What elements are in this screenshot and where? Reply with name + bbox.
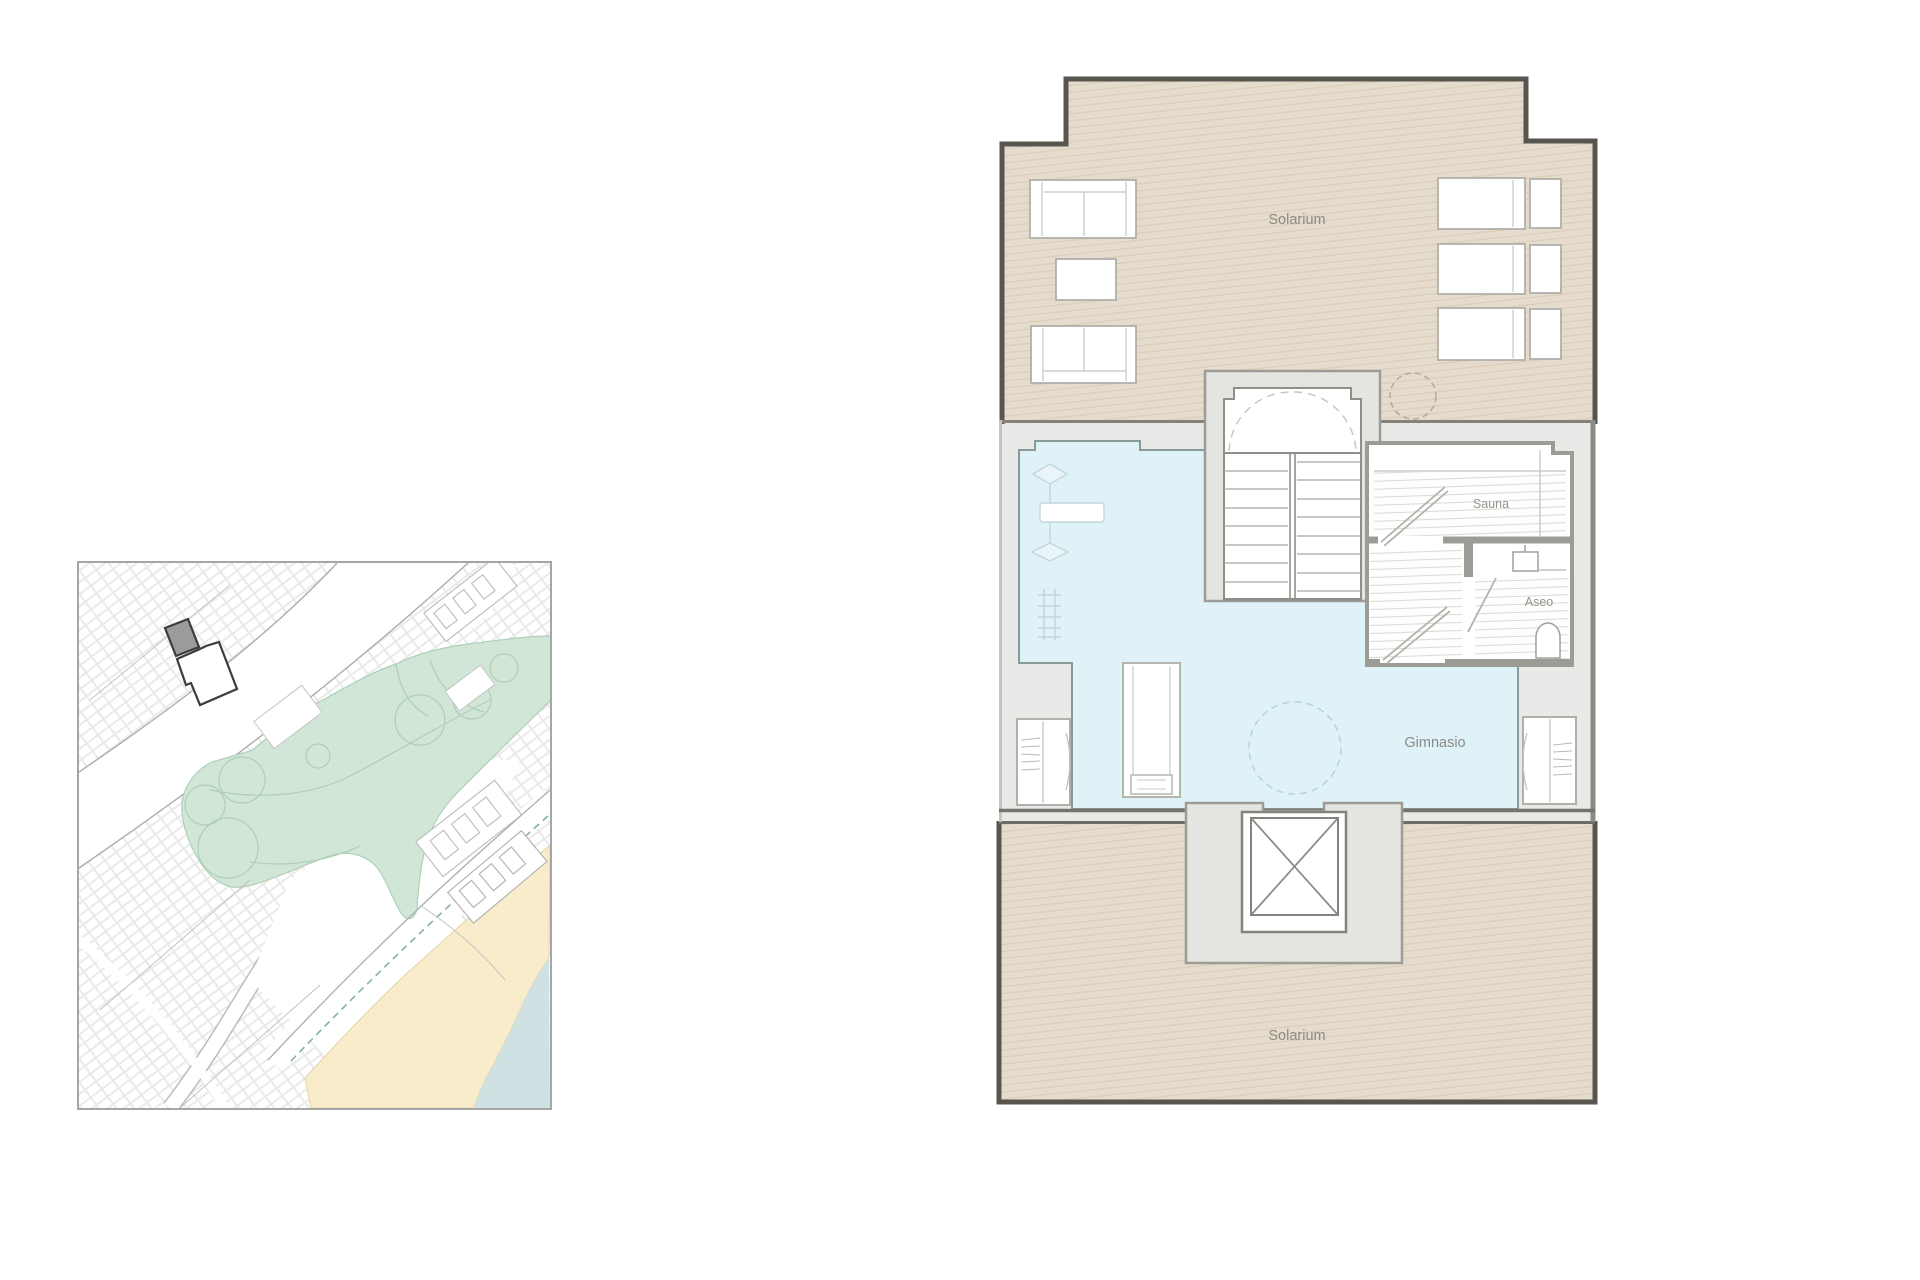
svg-text:Gimnasio: Gimnasio [1404, 735, 1465, 751]
svg-text:Solarium: Solarium [1268, 1028, 1325, 1044]
svg-text:Solarium: Solarium [1268, 212, 1325, 228]
svg-text:Sauna: Sauna [1473, 497, 1509, 511]
svg-text:Aseo: Aseo [1525, 595, 1554, 609]
